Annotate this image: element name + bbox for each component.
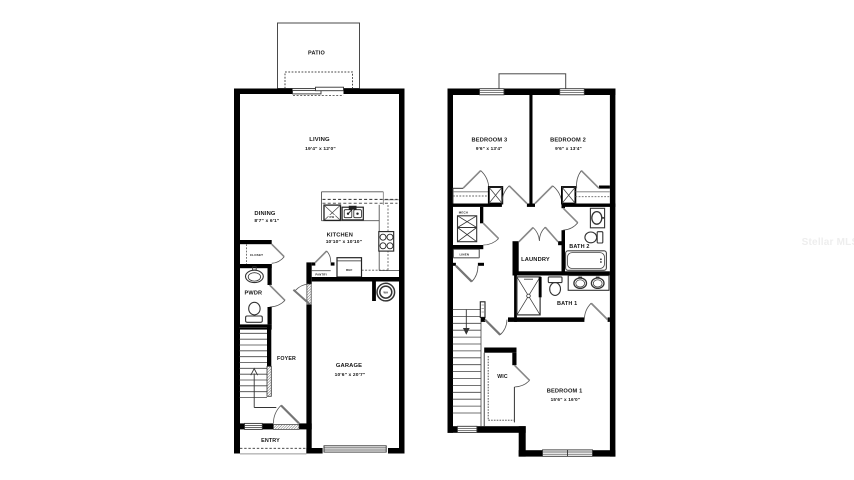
svg-text:GARAGE: GARAGE bbox=[336, 363, 362, 369]
svg-text:DINING: DINING bbox=[254, 211, 276, 217]
svg-text:WH: WH bbox=[384, 290, 389, 294]
svg-text:WIC: WIC bbox=[497, 374, 508, 380]
svg-text:BEDROOM 3: BEDROOM 3 bbox=[472, 137, 508, 143]
svg-text:BEDROOM 2: BEDROOM 2 bbox=[550, 137, 586, 143]
svg-text:FOYER: FOYER bbox=[277, 356, 296, 362]
svg-text:REF: REF bbox=[346, 268, 353, 272]
svg-text:8'7" x 6'1": 8'7" x 6'1" bbox=[254, 218, 279, 224]
svg-text:Stellar MLS: Stellar MLS bbox=[802, 237, 854, 248]
svg-text:LINEN: LINEN bbox=[459, 253, 469, 257]
svg-text:PANTRY: PANTRY bbox=[315, 273, 327, 277]
svg-text:10'10" x 10'10": 10'10" x 10'10" bbox=[326, 239, 362, 245]
svg-text:ENTRY: ENTRY bbox=[261, 438, 280, 444]
svg-text:9'6" x 13'4": 9'6" x 13'4" bbox=[476, 146, 503, 151]
svg-text:MECH: MECH bbox=[459, 211, 468, 215]
svg-text:LAUNDRY: LAUNDRY bbox=[521, 257, 550, 263]
svg-text:PWDR: PWDR bbox=[245, 290, 263, 296]
svg-text:BATH 2: BATH 2 bbox=[569, 244, 589, 250]
svg-text:BEDROOM 1: BEDROOM 1 bbox=[547, 389, 583, 395]
svg-text:19'4" x 12'0": 19'4" x 12'0" bbox=[305, 146, 336, 152]
svg-text:LIVING: LIVING bbox=[309, 137, 330, 143]
svg-text:KITCHEN: KITCHEN bbox=[327, 232, 353, 238]
svg-text:CLOSET: CLOSET bbox=[250, 253, 263, 257]
svg-text:10'6" x 20'7": 10'6" x 20'7" bbox=[335, 372, 366, 378]
svg-text:BATH 1: BATH 1 bbox=[557, 301, 577, 307]
svg-text:PATIO: PATIO bbox=[308, 51, 326, 57]
svg-text:9'6" x 13'4": 9'6" x 13'4" bbox=[555, 146, 582, 151]
svg-text:DW: DW bbox=[330, 215, 335, 219]
svg-text:15'6" x 16'0": 15'6" x 16'0" bbox=[551, 397, 580, 402]
